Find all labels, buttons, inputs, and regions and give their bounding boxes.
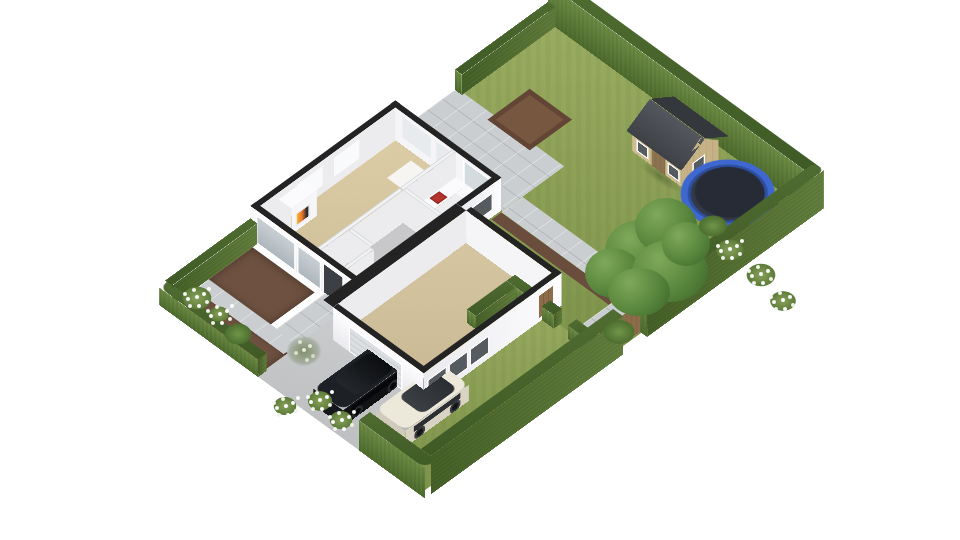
floorplan-render-canvas <box>0 0 960 540</box>
flower-cluster <box>766 288 800 314</box>
flower-cluster <box>742 260 780 290</box>
plot-plan <box>159 15 824 499</box>
